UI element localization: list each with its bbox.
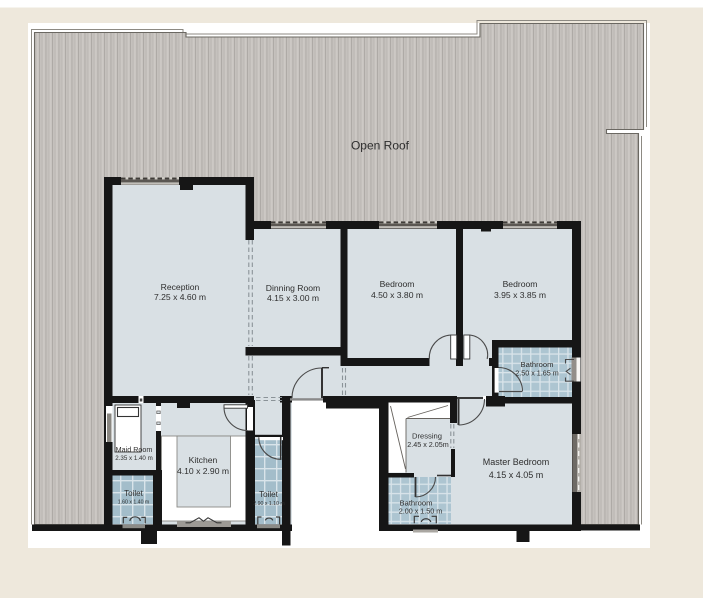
svg-text:2.45 x 2.05m: 2.45 x 2.05m xyxy=(407,440,449,449)
svg-text:Maid Room: Maid Room xyxy=(116,445,153,454)
svg-text:4.50 x 3.80 m: 4.50 x 3.80 m xyxy=(371,290,423,300)
svg-text:Dinning Room: Dinning Room xyxy=(266,283,320,293)
svg-text:Bedroom: Bedroom xyxy=(380,279,415,289)
svg-text:Toilet: Toilet xyxy=(259,490,278,499)
svg-text:Reception: Reception xyxy=(161,282,200,292)
svg-text:7.25 x 4.60 m: 7.25 x 4.60 m xyxy=(154,292,206,302)
svg-text:Master Bedroom: Master Bedroom xyxy=(483,457,550,467)
svg-text:4.10 x 2.90 m: 4.10 x 2.90 m xyxy=(177,466,229,476)
svg-text:2.50 x 1.65 m: 2.50 x 1.65 m xyxy=(515,369,559,378)
svg-text:2.35 x 1.40 m: 2.35 x 1.40 m xyxy=(115,455,153,462)
svg-text:Kitchen: Kitchen xyxy=(189,455,218,465)
svg-text:Bedroom: Bedroom xyxy=(503,279,538,289)
svg-text:Open Roof: Open Roof xyxy=(351,139,410,153)
svg-text:1.60 x 1.40 m: 1.60 x 1.40 m xyxy=(118,500,149,506)
svg-text:Toilet: Toilet xyxy=(124,489,143,498)
svg-text:3.95 x 3.85 m: 3.95 x 3.85 m xyxy=(494,290,546,300)
svg-text:4.15 x 4.05 m: 4.15 x 4.05 m xyxy=(489,470,544,480)
svg-text:2.90 x 1.10 m: 2.90 x 1.10 m xyxy=(253,501,284,507)
svg-text:2.00 x 1.50 m: 2.00 x 1.50 m xyxy=(399,507,443,516)
svg-text:4.15 x 3.00 m: 4.15 x 3.00 m xyxy=(267,293,319,303)
